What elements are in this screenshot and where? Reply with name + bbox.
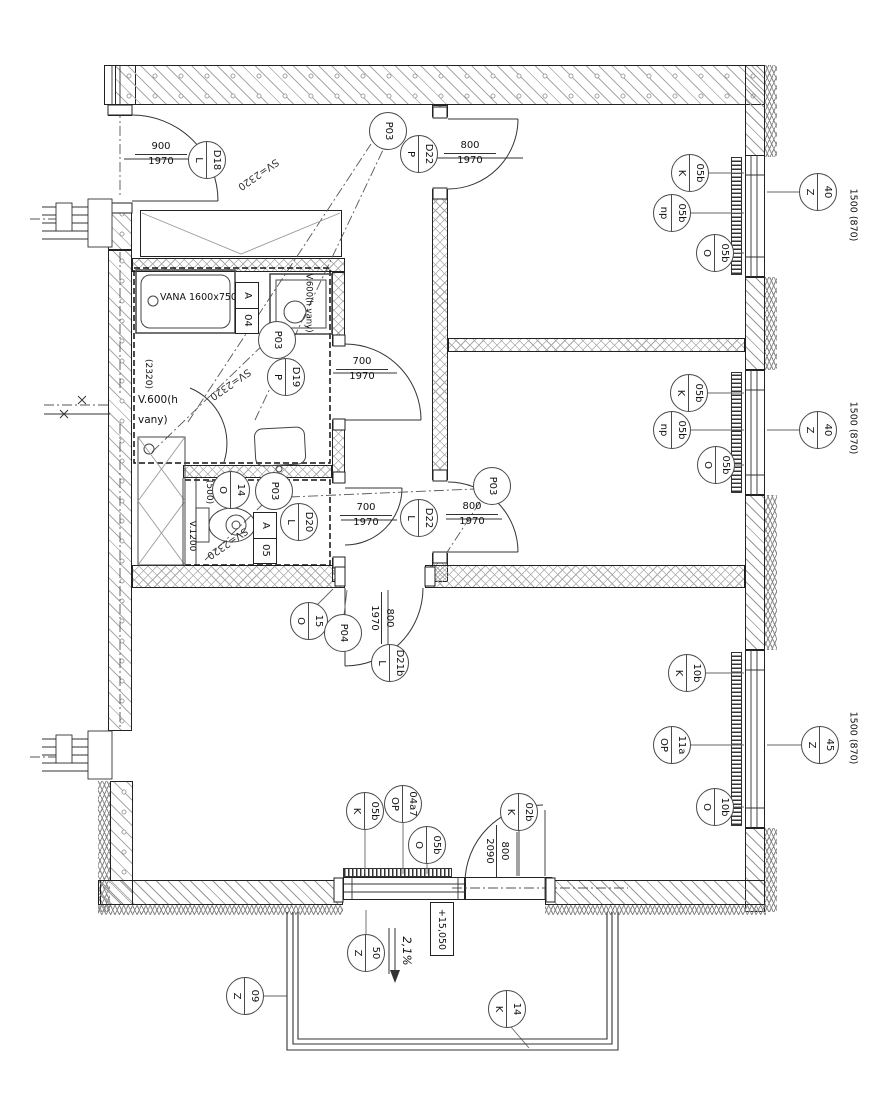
dim-height: 2090: [484, 825, 497, 877]
detail-box-a05: A05: [253, 512, 277, 564]
marker-type: 14: [507, 991, 526, 1027]
slope-arrow: [389, 928, 400, 983]
dim-door-d19: 7001970: [336, 356, 388, 382]
marker-type: 05b: [365, 793, 384, 829]
marker-type: 05b: [427, 827, 446, 863]
marker-letter: Z: [800, 174, 818, 210]
toilet-cistern: [196, 508, 209, 542]
washer-label: V.600(h vany): [303, 273, 312, 332]
marker-letter: O: [213, 472, 231, 508]
z09-marker: 09Z: [226, 977, 264, 1015]
balcony-op-marker: 04a7OP: [384, 785, 422, 823]
marker-type: D20: [299, 504, 318, 540]
marker-letter: np: [654, 195, 672, 231]
marker-letter: O: [697, 235, 715, 271]
dim-width: 800: [497, 825, 511, 877]
balcony-window-type-marker: 05bK: [346, 792, 384, 830]
o15-marker: 15O: [290, 602, 328, 640]
door-d18-marker: D18L: [188, 141, 226, 179]
marker-letter: O: [409, 827, 427, 863]
marker-letter: Z: [227, 978, 245, 1014]
marker-type: 11a: [672, 727, 691, 763]
marker-type: 14: [231, 472, 250, 508]
marker-type: 02b: [519, 794, 538, 830]
marker-letter: K: [671, 375, 689, 411]
dim-width: 700: [340, 502, 392, 516]
v600-label-line2: vany): [138, 414, 168, 426]
marker-type: 05b: [672, 412, 691, 448]
marker-letter: OP: [654, 727, 672, 763]
window1-type-marker: 05bK: [671, 154, 709, 192]
v1200-label: V.1200: [187, 521, 197, 552]
marker-letter: np: [654, 412, 672, 448]
elevation-value: +15,050: [437, 908, 448, 949]
dim-door-d20: 7001970: [340, 502, 392, 528]
dim-height: 1970: [340, 516, 392, 529]
window3-op-marker: 11aOP: [653, 726, 691, 764]
window-span-label-3: 1500 (870): [848, 712, 859, 765]
dim-door-d21b: 8001970: [369, 592, 395, 644]
marker-letter: P: [268, 359, 286, 395]
corner-joint-lines: [112, 65, 120, 105]
marker-label: P03: [259, 322, 295, 358]
detail-box-a04: A04: [235, 282, 259, 334]
door-d20-marker: D20L: [280, 503, 318, 541]
z40-marker-2: 40Z: [799, 411, 837, 449]
marker-type: 40: [818, 174, 837, 210]
z50-marker: 50Z: [347, 934, 385, 972]
z40-marker-1: 40Z: [799, 173, 837, 211]
p03-marker-bathroom: P03: [258, 321, 296, 359]
marker-type: 40: [818, 412, 837, 448]
dim-height: 1970: [369, 592, 382, 644]
marker-letter: K: [672, 155, 690, 191]
door-d21b-marker: D21bL: [371, 644, 409, 682]
window-span-label-1: 1500 (870): [848, 189, 859, 242]
p04-marker: P04: [324, 614, 362, 652]
floor-plan-sheet: D18L P03 D22P 05bK 05bnp 05bO 40Z P03 D1…: [0, 0, 890, 1106]
sink-tap: [276, 466, 282, 472]
marker-type: 05b: [672, 195, 691, 231]
marker-letter: L: [281, 504, 299, 540]
box-number: 05: [254, 539, 276, 564]
marker-letter: Z: [802, 727, 820, 763]
dim-balcony-door: 8002090: [484, 825, 510, 877]
marker-letter: Z: [348, 935, 366, 971]
shower-tray: [138, 437, 185, 565]
p03-marker-corridor: P03: [473, 467, 511, 505]
kitchen-diagonals: [142, 213, 340, 254]
v600-label-line1: V.600(h: [138, 394, 178, 406]
marker-letter: Z: [800, 412, 818, 448]
marker-letter: K: [501, 794, 519, 830]
window2-o-marker: 05bO: [697, 446, 735, 484]
dim-height: 1970: [336, 370, 388, 383]
window1-o-marker: 05bO: [696, 234, 734, 272]
box-letter: A: [254, 513, 276, 539]
dim-width: 700: [336, 356, 388, 370]
marker-letter: P: [401, 136, 419, 172]
dim-width: 900: [135, 141, 187, 155]
marker-type: 04a7: [403, 786, 422, 822]
marker-letter: K: [669, 655, 687, 691]
marker-type: D22: [419, 500, 438, 536]
marker-type: 50: [366, 935, 385, 971]
marker-letter: O: [697, 789, 715, 825]
marker-letter: O: [291, 603, 309, 639]
bathtub-drain: [148, 296, 158, 306]
pipe-groups: [42, 199, 112, 779]
marker-type: 10b: [687, 655, 706, 691]
marker-letter: OP: [385, 786, 403, 822]
marker-type: D21b: [390, 645, 409, 681]
z45-marker: 45Z: [801, 726, 839, 764]
marker-type: D18: [207, 142, 226, 178]
o14-marker: 14O: [212, 471, 250, 509]
balcony-o-marker: 05bO: [408, 826, 446, 864]
marker-type: D19: [286, 359, 305, 395]
marker-type: 45: [820, 727, 839, 763]
dim-height: 1970: [135, 155, 187, 168]
leader-lines: [263, 173, 802, 1048]
marker-label: P03: [474, 468, 510, 504]
dim-height: 1970: [444, 154, 496, 167]
marker-type: 10b: [715, 789, 734, 825]
marker-letter: L: [401, 500, 419, 536]
marker-letter: L: [189, 142, 207, 178]
dim-door-d18: 9001970: [135, 141, 187, 167]
dim-height: 1970: [446, 515, 498, 528]
door-d22-top-marker: D22P: [400, 135, 438, 173]
shower-door-swing: [190, 388, 227, 462]
marker-type: 05b: [689, 375, 708, 411]
box-number: 04: [236, 309, 258, 334]
marker-letter: O: [698, 447, 716, 483]
marker-letter: L: [372, 645, 390, 681]
balcony-door-type-marker: 02bK: [500, 793, 538, 831]
window1-np-marker: 05bnp: [653, 194, 691, 232]
slope-label: 2,1%: [400, 936, 414, 965]
door-d19-marker: D19P: [267, 358, 305, 396]
dim-width: 800: [444, 140, 496, 154]
marker-type: 05b: [715, 235, 734, 271]
marker-type: 05b: [690, 155, 709, 191]
elevation-box: +15,050: [430, 902, 454, 956]
window2-type-marker: 05bK: [670, 374, 708, 412]
sink: [254, 427, 306, 467]
dim-door-d22-top: 8001970: [444, 140, 496, 166]
dim-width: 800: [382, 592, 396, 644]
marker-type: D22: [419, 136, 438, 172]
axis-lines: [30, 108, 628, 888]
marker-type: 09: [245, 978, 264, 1014]
marker-label: P04: [325, 615, 361, 651]
k14-marker: 14K: [488, 990, 526, 1028]
tub-height-label: (2320): [143, 359, 153, 389]
window3-o-marker: 10bO: [696, 788, 734, 826]
marker-type: 05b: [716, 447, 735, 483]
marker-letter: K: [489, 991, 507, 1027]
door-d22-bottom-marker: D22L: [400, 499, 438, 537]
window-span-label-2: 1500 (870): [848, 402, 859, 455]
window2-np-marker: 05bnp: [653, 411, 691, 449]
box-letter: A: [236, 283, 258, 309]
window3-type-marker: 10bK: [668, 654, 706, 692]
marker-letter: K: [347, 793, 365, 829]
